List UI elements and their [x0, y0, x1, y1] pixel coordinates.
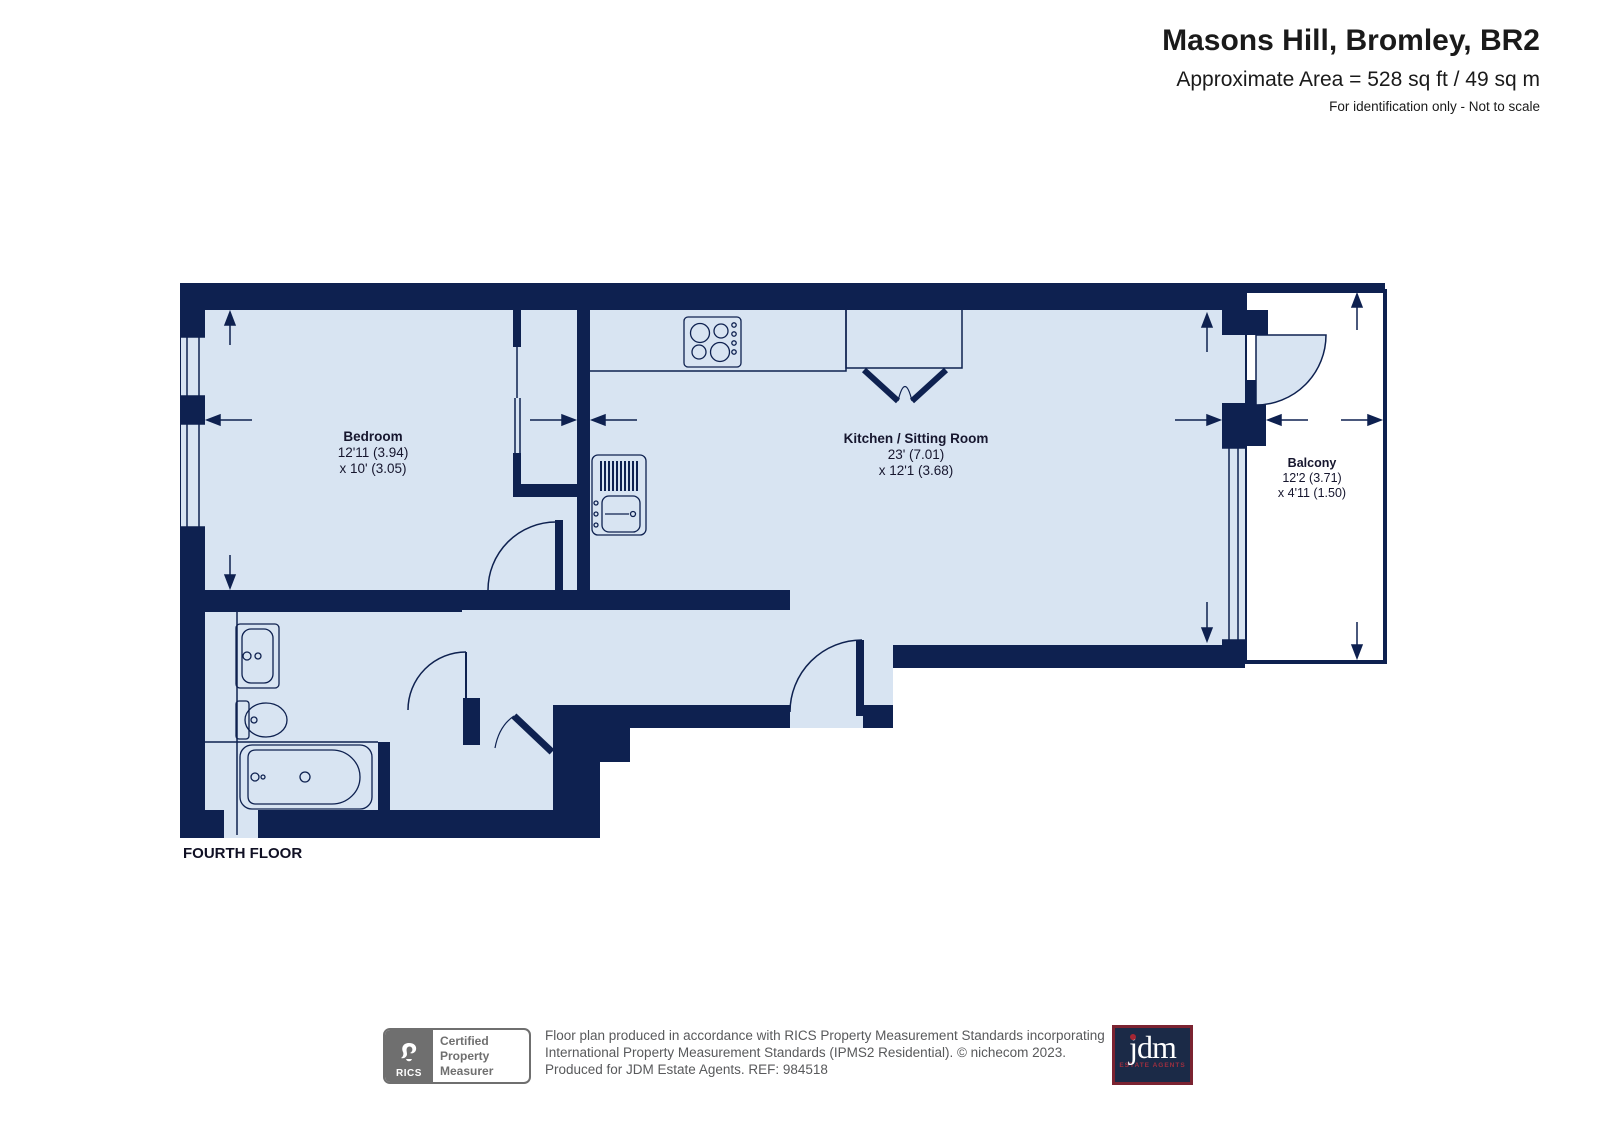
jdm-estate-agents-logo: jdm ESTATE AGENTS: [1112, 1025, 1193, 1085]
jdm-logo-text: jdm: [1129, 1035, 1176, 1061]
bedroom-dim1: 12'11 (3.94): [338, 445, 409, 460]
bedroom-dim2: x 10' (3.05): [339, 461, 406, 476]
bedroom-window-upper: [181, 337, 205, 396]
balcony-dim2: x 4'11 (1.50): [1278, 486, 1346, 500]
room-floors: [205, 310, 1222, 838]
rics-logo-text: RICS: [396, 1068, 422, 1079]
balcony-name: Balcony: [1288, 456, 1337, 470]
disclaimer-line3: Produced for JDM Estate Agents. REF: 984…: [545, 1062, 1105, 1079]
disclaimer-line1: Floor plan produced in accordance with R…: [545, 1028, 1105, 1045]
cupboard-floor: [390, 742, 553, 810]
disclaimer-line2: International Property Measurement Stand…: [545, 1045, 1105, 1062]
rics-label-line1: Certified: [440, 1034, 529, 1049]
disclaimer-text: Floor plan produced in accordance with R…: [545, 1028, 1105, 1079]
kitchen-dim1: 23' (7.01): [888, 447, 945, 462]
rics-label-line3: Measurer: [440, 1064, 529, 1079]
bedroom-label: Bedroom 12'11 (3.94) x 10' (3.05): [338, 429, 409, 476]
balcony-dim1: 12'2 (3.71): [1282, 471, 1341, 485]
cupboard-entry-floor: [480, 705, 553, 742]
kitchen-name: Kitchen / Sitting Room: [844, 431, 989, 446]
bedroom-name: Bedroom: [343, 429, 402, 444]
kitchen-balcony-window: [1222, 448, 1245, 640]
bath-alcove-floor: [205, 742, 378, 810]
rics-logo: RICS: [385, 1030, 433, 1082]
bedroom-window-lower: [181, 424, 205, 527]
rics-certification-label: Certified Property Measurer: [433, 1030, 529, 1082]
rics-badge: RICS Certified Property Measurer: [383, 1028, 531, 1084]
kitchen-dim2: x 12'1 (3.68): [879, 463, 954, 478]
floor-plan-svg: Bedroom 12'11 (3.94) x 10' (3.05) Kitche…: [0, 0, 1599, 1131]
bottom-wall-gap: [224, 810, 258, 838]
bathroom-floor: [205, 612, 463, 742]
rics-lion-icon: [394, 1040, 424, 1068]
rics-label-line2: Property: [440, 1049, 529, 1064]
jdm-logo-dot: [1130, 1034, 1136, 1040]
jdm-logo-word: jdm: [1129, 1029, 1176, 1065]
floor-level-label: FOURTH FLOOR: [183, 845, 302, 862]
balcony-label: Balcony 12'2 (3.71) x 4'11 (1.50): [1278, 456, 1346, 500]
entrance-opening: [790, 705, 863, 728]
footer: RICS Certified Property Measurer Floor p…: [0, 1018, 1599, 1098]
